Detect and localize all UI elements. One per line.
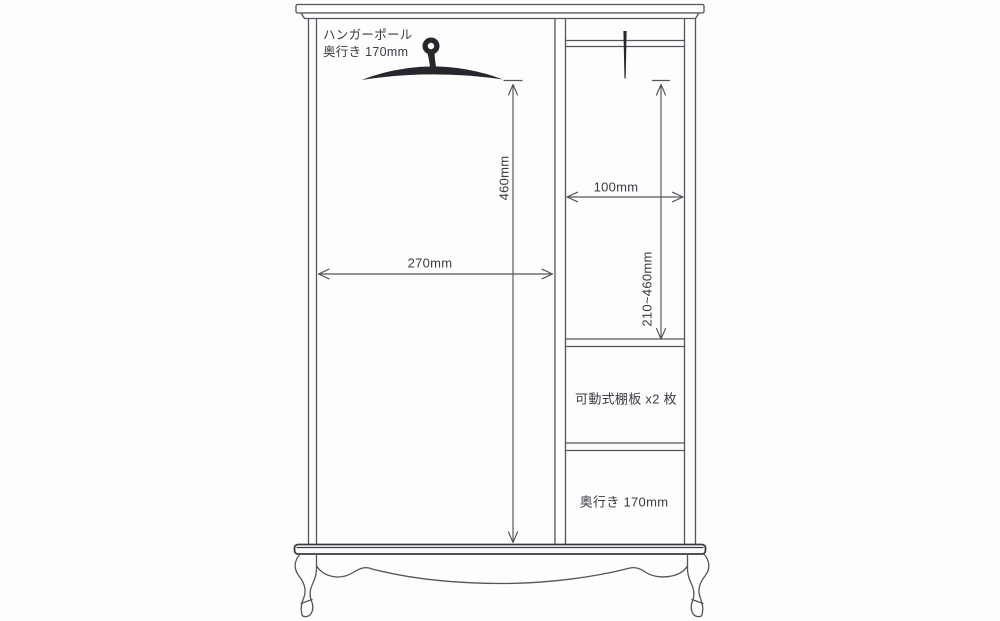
dimension-270-arrow [319, 269, 553, 279]
rail-hook-icon [623, 31, 626, 79]
dim-left-width-label: 270mm [408, 256, 453, 271]
shelf-lower [566, 443, 685, 451]
cornice [296, 5, 704, 19]
left-wall [309, 19, 317, 546]
shelf-upper [566, 339, 685, 347]
hanger-note-line2: 奥行き 170mm [323, 41, 408, 60]
dim-right-width-label: 100mm [594, 180, 639, 195]
right-wall [685, 19, 696, 546]
dimension-210-460-arrow [653, 81, 670, 340]
apron [317, 566, 688, 584]
center-divider [555, 19, 566, 546]
dimension-460-arrow [504, 81, 522, 543]
right-leg [687, 554, 708, 617]
depth-note-label: 奥行き 170mm [580, 492, 669, 511]
wardrobe-line-art [0, 0, 1000, 621]
dim-right-height-range-label: 210~460mm [640, 251, 655, 326]
left-leg [295, 554, 316, 617]
dim-left-height-label: 460mm [497, 156, 512, 201]
bottom-board [295, 545, 706, 555]
shelf-note-label: 可動式棚板 x2 枚 [575, 389, 677, 408]
wardrobe-diagram: ハンガーポール 奥行き 170mm 460mm 270mm 100mm 210~… [0, 0, 1000, 621]
